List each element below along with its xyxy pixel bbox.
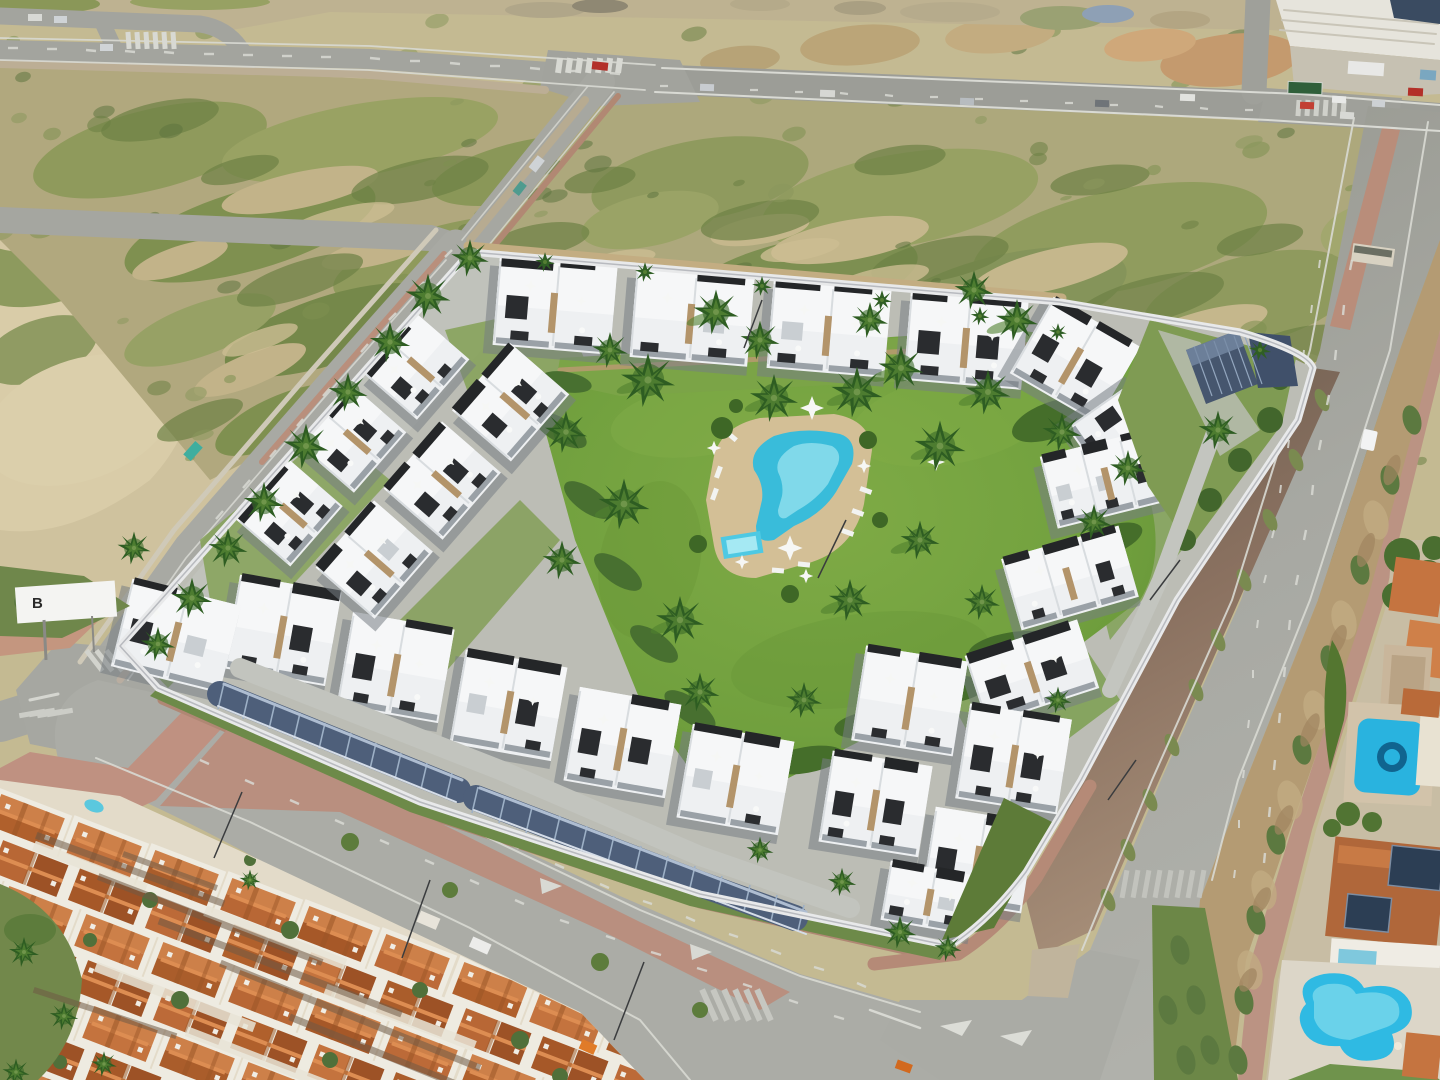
svg-text:B: B: [32, 595, 43, 612]
